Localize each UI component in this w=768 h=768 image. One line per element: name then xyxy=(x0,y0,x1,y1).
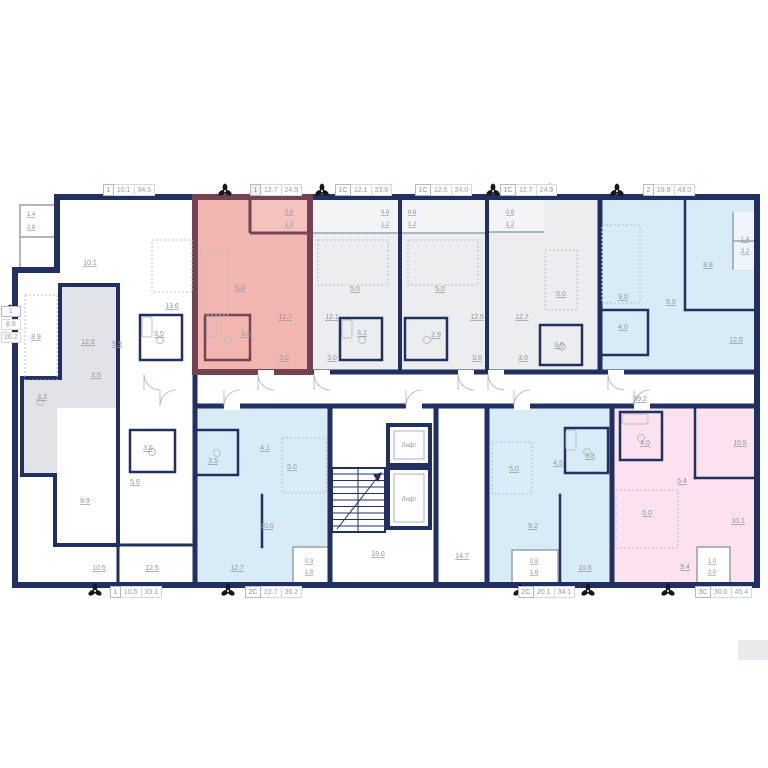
room-area-label: 3.8 xyxy=(585,453,595,460)
unit-tag[interactable]: 1С12.524.0 xyxy=(415,184,472,196)
unit-room-area: 12.7 xyxy=(516,184,537,196)
room-area-label: 10.1 xyxy=(731,518,745,525)
room-area-label: 2.9 xyxy=(431,332,441,339)
room-area-label: 0.6 xyxy=(506,210,515,216)
unit-type-badge: 1С xyxy=(500,184,516,196)
room-area-label: 5.0 xyxy=(435,286,445,293)
room-area-label: 12.7 xyxy=(278,314,292,321)
watermark xyxy=(738,640,768,660)
room-area-label: 12.7 xyxy=(515,314,529,321)
unit-total-area: 36.2 xyxy=(282,586,303,598)
unit-room-area: 30.0 xyxy=(711,586,732,598)
room-area-label: 3.6 xyxy=(241,331,251,338)
door-opening xyxy=(634,402,650,410)
room-area-label: 10.1 xyxy=(83,260,97,267)
balcony xyxy=(697,547,730,585)
door-opening xyxy=(406,402,422,410)
room-area-label: 12.0 xyxy=(729,337,743,344)
room-area-label: 3.3 xyxy=(37,394,47,401)
balcony xyxy=(293,547,330,585)
room-area-label: 1.6 xyxy=(530,570,539,576)
room-area-label: 10.5 xyxy=(92,565,106,572)
room-area-label: 1.2 xyxy=(408,222,417,228)
unit-room-area: 22.7 xyxy=(261,586,282,598)
room-area-label: 0.6 xyxy=(381,210,390,216)
unit-room-area: 12.7 xyxy=(261,184,282,196)
unit-room-area: 12.5 xyxy=(431,184,452,196)
room-area-label: 3.0 xyxy=(472,355,482,362)
unit-room-area: 10.5 xyxy=(121,586,142,598)
unit-total-area: 45.4 xyxy=(732,586,753,598)
unit-tag[interactable]: 110.533.1 xyxy=(110,586,162,598)
room-area-label: 5.0 xyxy=(556,291,566,298)
room-area-label: 5.6 xyxy=(130,479,140,486)
unit-tag[interactable]: 1С12.123.8 xyxy=(335,184,392,196)
unit-total-area: 34.5 xyxy=(135,184,156,196)
room-area-label: 3.1 xyxy=(357,330,367,337)
unit-tag[interactable]: 2С20.134.1 xyxy=(518,586,575,598)
unit-type-badge: 1 xyxy=(103,184,114,196)
balcony xyxy=(512,550,558,585)
door-opening xyxy=(144,370,160,378)
room-area-label: 3.5 xyxy=(154,331,164,338)
unit-type-badge: 2 xyxy=(643,184,654,196)
room-area-label: 3.2 xyxy=(741,249,750,255)
floor-plan-canvas: ЛифтЛифт1.42.810.113.63.55.98.912.52.63.… xyxy=(0,0,768,768)
room-area-label: 3.0 xyxy=(518,355,528,362)
unit-room-area: 20.1 xyxy=(534,586,555,598)
unit-type-badge: 2С xyxy=(245,586,261,598)
unit-room-area: 10.1 xyxy=(114,184,135,196)
unit-type-badge: 2С xyxy=(518,586,534,598)
unit-tag[interactable]: 1С12.724.9 xyxy=(500,184,557,196)
unit-type-badge: 1 xyxy=(250,184,261,196)
unit-type-badge: 1 xyxy=(1,306,21,317)
room-area-label: 8.9 xyxy=(80,498,90,505)
unit-room-area: 12.1 xyxy=(351,184,372,196)
balcony-highlighted xyxy=(250,200,310,233)
unit-total-area: 24.9 xyxy=(282,184,303,196)
room-area-label: 39.2 xyxy=(633,396,647,403)
room-area-label: 3.5 xyxy=(208,458,218,465)
room-area-label: 1.4 xyxy=(27,212,36,218)
room-area-label: 8.8 xyxy=(703,262,713,269)
room-area-label: 2.8 xyxy=(27,225,36,231)
room-area-label: 1.2 xyxy=(506,222,515,228)
unit-room-area: 19.8 xyxy=(654,184,675,196)
room-area-label: 12.1 xyxy=(325,314,339,321)
unit-tag[interactable]: 3С30.045.4 xyxy=(695,586,752,598)
room-area-label: 3.6 xyxy=(143,445,153,452)
room-area-label: 8.9 xyxy=(31,334,41,341)
elevator-label: Лифт xyxy=(402,443,417,449)
room-area-label: 5.9 xyxy=(112,341,122,348)
room-area-label: 5.6 xyxy=(666,299,676,306)
door-opening xyxy=(488,370,504,378)
room-area-label: 12.5 xyxy=(470,314,484,321)
unit-total-area: 24.0 xyxy=(452,184,473,196)
room-area-label: 5.0 xyxy=(509,466,519,473)
door-opening xyxy=(160,402,176,410)
room-area-label: 12.5 xyxy=(145,565,159,572)
room-area-label: 1.8 xyxy=(305,570,314,576)
room-area-label: 4.0 xyxy=(640,440,650,447)
unit-total-area: 24.9 xyxy=(537,184,558,196)
room-area-label: 10.8 xyxy=(578,565,592,572)
door-opening xyxy=(514,402,530,410)
room-area-label: 0.9 xyxy=(305,559,314,565)
room-area-label: 1.2 xyxy=(381,222,390,228)
room-area-label: 4.5 xyxy=(553,460,563,467)
balcony xyxy=(312,200,398,233)
unit-total-area: 23.8 xyxy=(372,184,393,196)
room-area-label: 0.8 xyxy=(530,559,539,565)
unit-room-area: 8.9 xyxy=(1,319,21,330)
room-area-label: 5.0 xyxy=(642,510,652,517)
unit-tag[interactable]: 112.724.9 xyxy=(250,184,302,196)
balcony xyxy=(402,200,485,233)
room-area-label: 9.2 xyxy=(528,523,538,530)
room-area-label: 5.0 xyxy=(235,285,245,292)
room-area-label: 12.7 xyxy=(230,565,244,572)
room-area-label: 10.5 xyxy=(733,440,747,447)
room-area-label: 3.0 xyxy=(327,355,337,362)
room-area-label: 1.0 xyxy=(708,559,717,565)
room-area-label: 12.5 xyxy=(81,339,95,346)
room-area-label: 3.0 xyxy=(279,355,289,362)
unit-total-area: 33.1 xyxy=(142,586,163,598)
unit-tag[interactable]: 219.843.0 xyxy=(643,184,695,196)
unit-type-badge: 3С xyxy=(695,586,711,598)
room-area-label: 3.6 xyxy=(554,342,564,349)
unit-tag-left[interactable]: 1 8.9 26.2 xyxy=(1,306,21,343)
room-area-label: 0.6 xyxy=(285,210,294,216)
room-area-label: 18.0 xyxy=(371,551,385,558)
room-area-label: 5.0 xyxy=(350,286,360,293)
room-area-label: 9.4 xyxy=(680,564,690,571)
unit-tag[interactable]: 110.134.5 xyxy=(103,184,155,196)
floor-plan: ЛифтЛифт1.42.810.113.63.55.98.912.52.63.… xyxy=(0,0,768,768)
room-area-label: 4.0 xyxy=(618,324,628,331)
room-area-label: 2.0 xyxy=(708,570,717,576)
unit-total-area: 43.0 xyxy=(675,184,696,196)
unit-tag[interactable]: 2С22.736.2 xyxy=(245,586,302,598)
door-opening xyxy=(258,370,274,378)
room-area-label: 13.6 xyxy=(165,303,179,310)
apartment-3c[interactable] xyxy=(612,408,757,585)
door-opening xyxy=(224,402,240,410)
room-area-label: 1.2 xyxy=(285,222,294,228)
unit-type-badge: 1С xyxy=(415,184,431,196)
room-area-label: 10.0 xyxy=(260,523,274,530)
unit-total-area: 34.1 xyxy=(555,586,576,598)
corridor xyxy=(195,374,757,406)
room-area-label: 9.0 xyxy=(618,294,628,301)
elevator-label: Лифт xyxy=(402,497,417,503)
door-opening xyxy=(458,370,474,378)
room-area-label: 1.4 xyxy=(741,237,750,243)
room-area-label: 5.0 xyxy=(287,464,297,471)
room-area-label: 5.4 xyxy=(677,478,687,485)
door-opening xyxy=(608,370,624,378)
balcony xyxy=(489,200,544,232)
room-area-label: 0.6 xyxy=(408,210,417,216)
room-area-label: 4.1 xyxy=(260,445,270,452)
room-area-label: 2.6 xyxy=(91,372,101,379)
unit-type-badge: 1 xyxy=(110,586,121,598)
unit-type-badge: 1С xyxy=(335,184,351,196)
unit-total-area: 26.2 xyxy=(1,332,21,343)
room-area-label: 14.7 xyxy=(455,553,469,560)
door-opening xyxy=(314,370,330,378)
